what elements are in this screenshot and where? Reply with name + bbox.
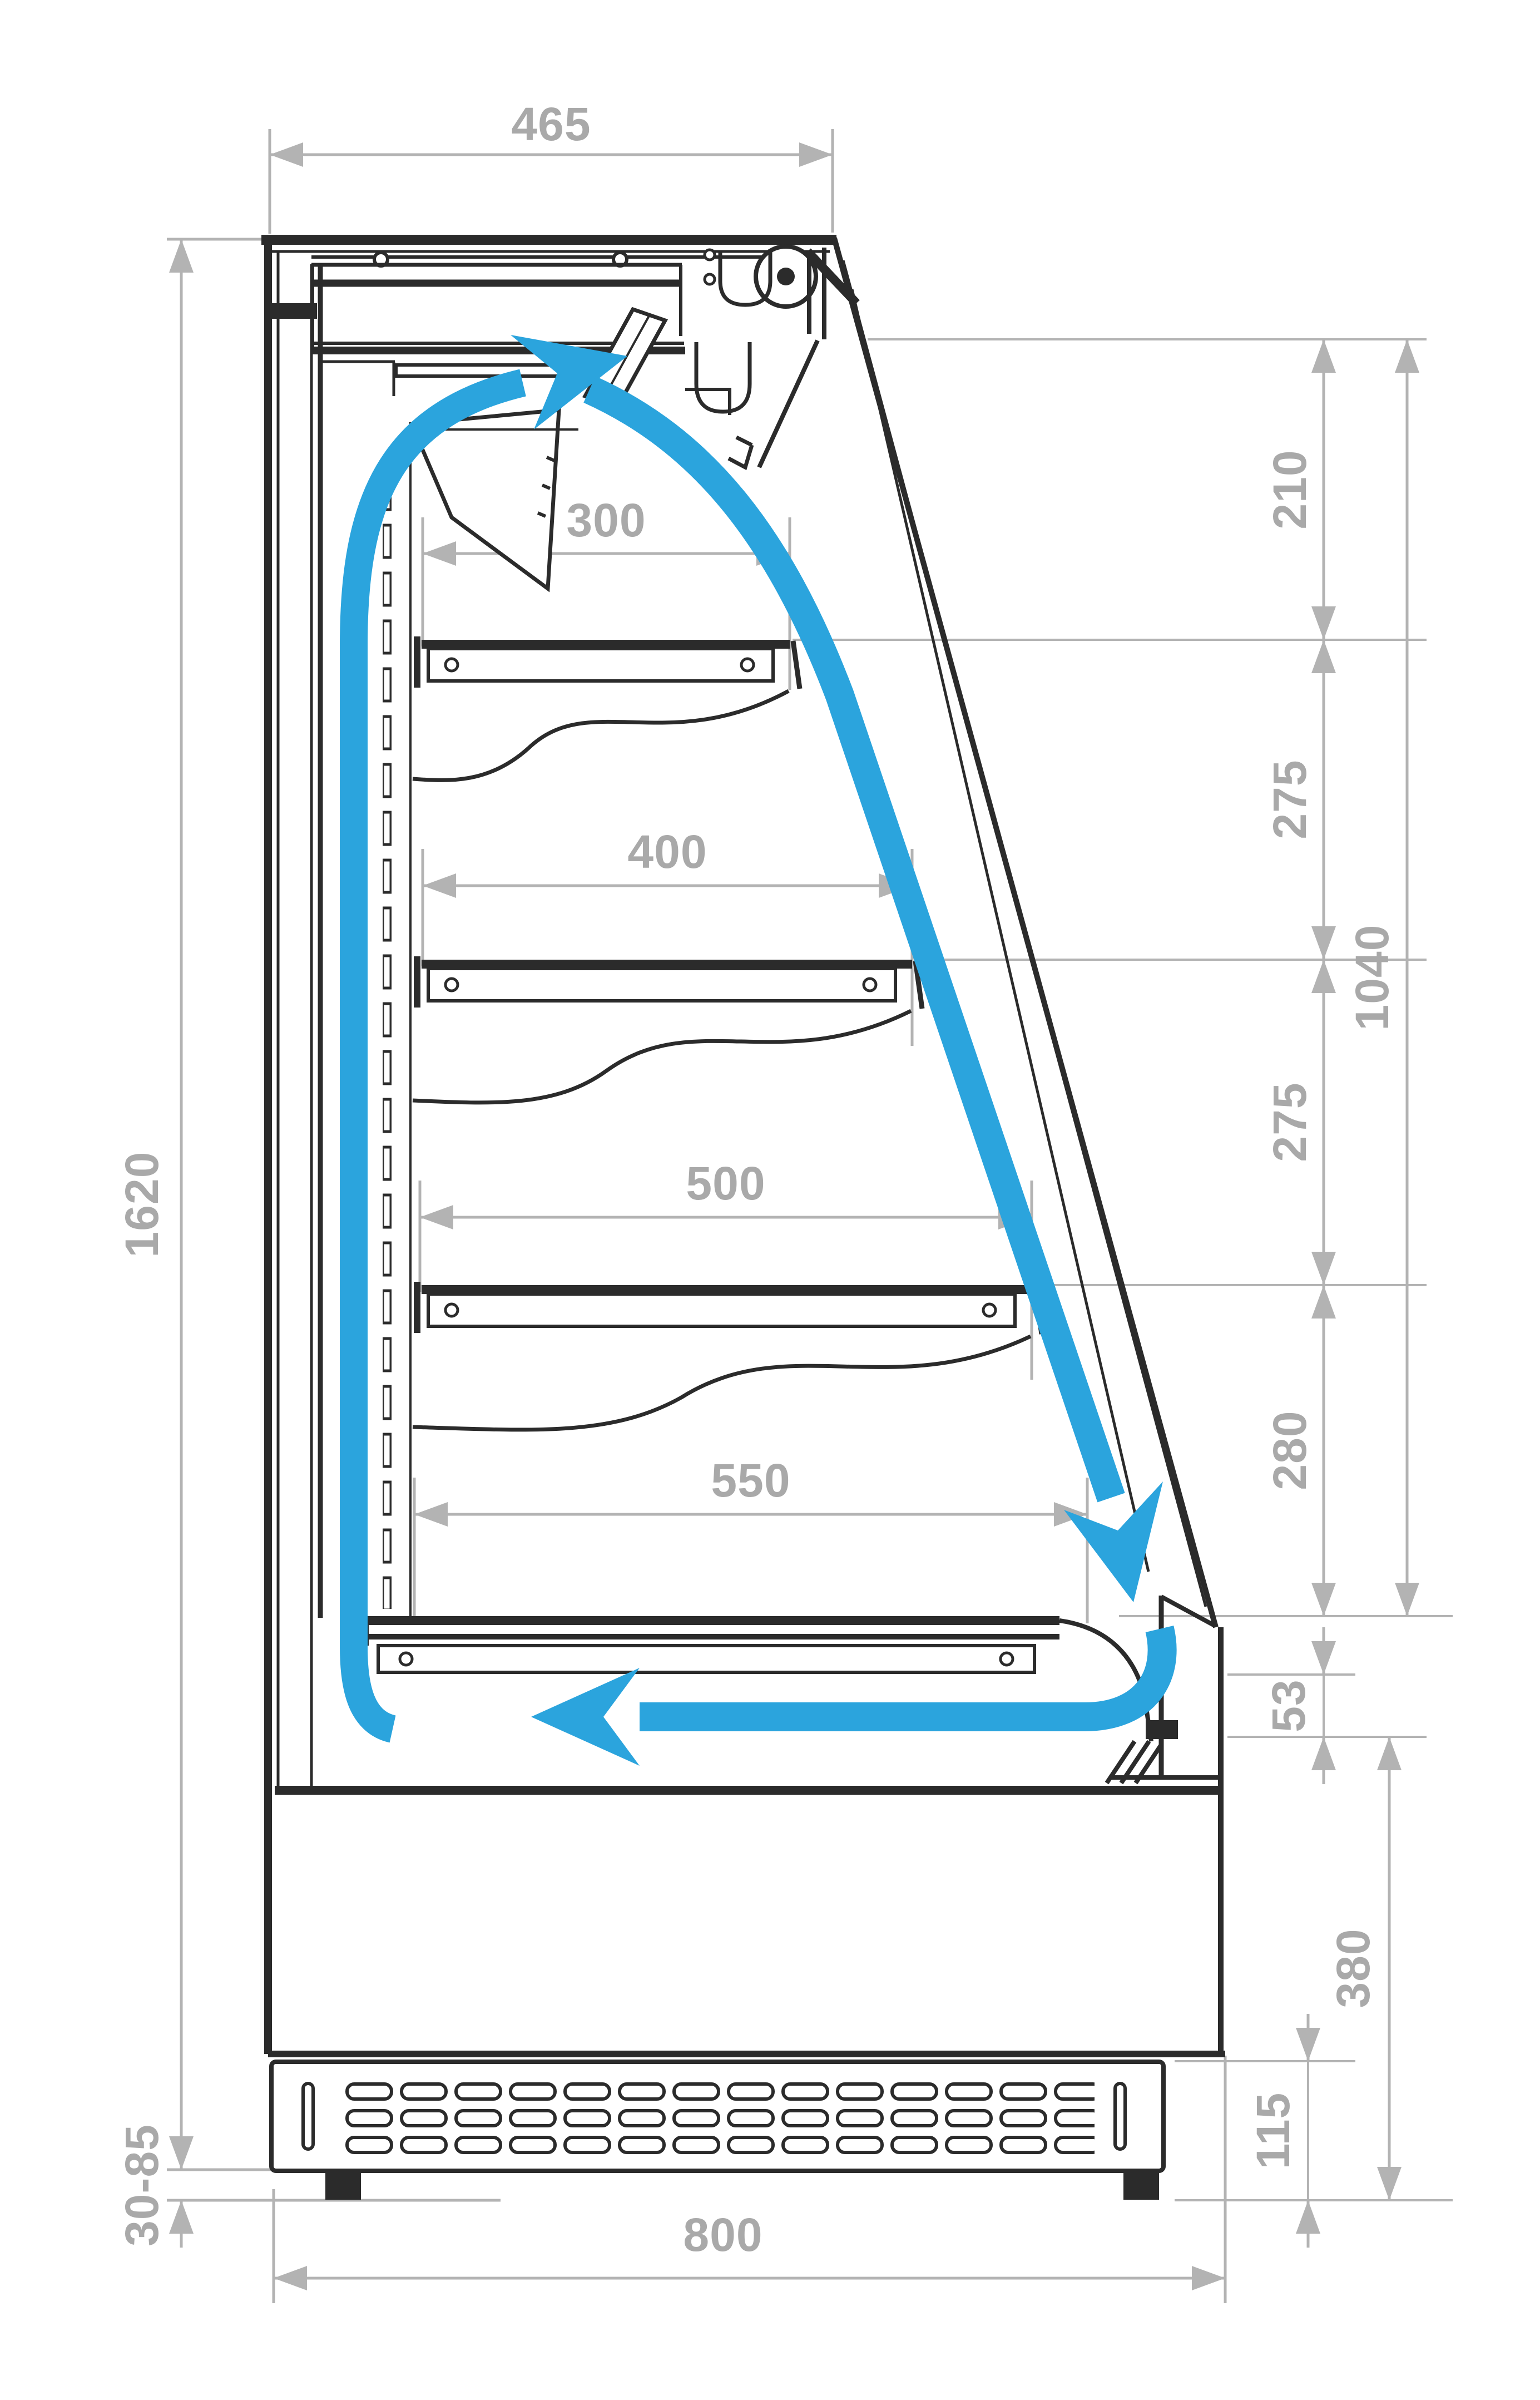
dimension-opening-total: 1040 bbox=[1346, 339, 1419, 1616]
dim-label-shelf-1-depth: 300 bbox=[566, 494, 646, 546]
dim-label-base-width: 800 bbox=[683, 2209, 762, 2261]
airflow-arrows bbox=[354, 335, 1163, 1766]
dim-label-shelf-2-depth: 400 bbox=[627, 826, 707, 878]
dim-label-overall-height: 1620 bbox=[116, 1152, 168, 1258]
dimension-shelf-3-depth: 500 bbox=[420, 1157, 1032, 1380]
dim-label-level-bottom: 280 bbox=[1264, 1410, 1316, 1490]
shelf-1 bbox=[413, 636, 800, 780]
dimension-level-bottom: 280 bbox=[1264, 1285, 1336, 1616]
louvered-plinth-panel bbox=[271, 2062, 1163, 2171]
dimension-level-mid-2: 275 bbox=[1264, 960, 1336, 1285]
dim-label-opening-total: 1040 bbox=[1346, 925, 1398, 1031]
dim-label-level-top: 210 bbox=[1264, 450, 1316, 529]
foot-right bbox=[1123, 2170, 1159, 2200]
drawing-page: 465 1620 30-85 800 300 bbox=[0, 0, 1540, 2400]
dimension-base-height: 380 bbox=[1327, 1737, 1402, 2200]
curtain-arrowhead bbox=[1064, 1482, 1163, 1602]
base bbox=[268, 1627, 1225, 2054]
dim-label-shelf-3-depth: 500 bbox=[686, 1157, 765, 1209]
shelf-standard-slots bbox=[383, 474, 392, 1609]
cross-section-diagram: 465 1620 30-85 800 300 bbox=[0, 0, 1540, 2400]
dim-label-feet-adjust: 30-85 bbox=[116, 2124, 168, 2246]
shelf-2 bbox=[413, 956, 922, 1103]
dim-label-deck-depth: 550 bbox=[711, 1454, 790, 1507]
foot-left bbox=[325, 2170, 361, 2200]
dim-label-level-mid-1: 275 bbox=[1264, 759, 1316, 839]
canopy bbox=[261, 240, 836, 350]
dimension-top-width: 465 bbox=[270, 98, 833, 234]
dimension-level-mid-1: 275 bbox=[1264, 640, 1336, 960]
dimension-annotations: 465 1620 30-85 800 300 bbox=[116, 98, 1453, 2303]
return-arrowhead bbox=[531, 1668, 640, 1766]
shelf-3 bbox=[413, 1282, 1042, 1430]
right-extension-lines bbox=[793, 339, 1453, 2200]
fan-unit bbox=[685, 246, 824, 467]
dim-label-level-mid-2: 275 bbox=[1264, 1082, 1316, 1162]
adjustable-feet bbox=[325, 2170, 1159, 2200]
dimension-level-top: 210 bbox=[1264, 339, 1336, 640]
dim-label-top-width: 465 bbox=[511, 98, 591, 150]
glass-front bbox=[808, 238, 1216, 1627]
dimension-front-step: 53 bbox=[1262, 1627, 1336, 1784]
dim-label-base-height: 380 bbox=[1327, 1928, 1379, 2008]
dimension-plinth-height: 115 bbox=[1247, 2014, 1320, 2248]
dimension-overall-height: 1620 bbox=[116, 239, 261, 2170]
dimension-deck-depth: 550 bbox=[414, 1454, 1087, 1623]
ventilation-louvers bbox=[345, 2080, 1095, 2161]
dimension-shelf-2-depth: 400 bbox=[423, 826, 912, 1046]
dim-label-plinth-height: 115 bbox=[1247, 2092, 1299, 2170]
dim-label-front-step: 53 bbox=[1262, 1679, 1315, 1732]
